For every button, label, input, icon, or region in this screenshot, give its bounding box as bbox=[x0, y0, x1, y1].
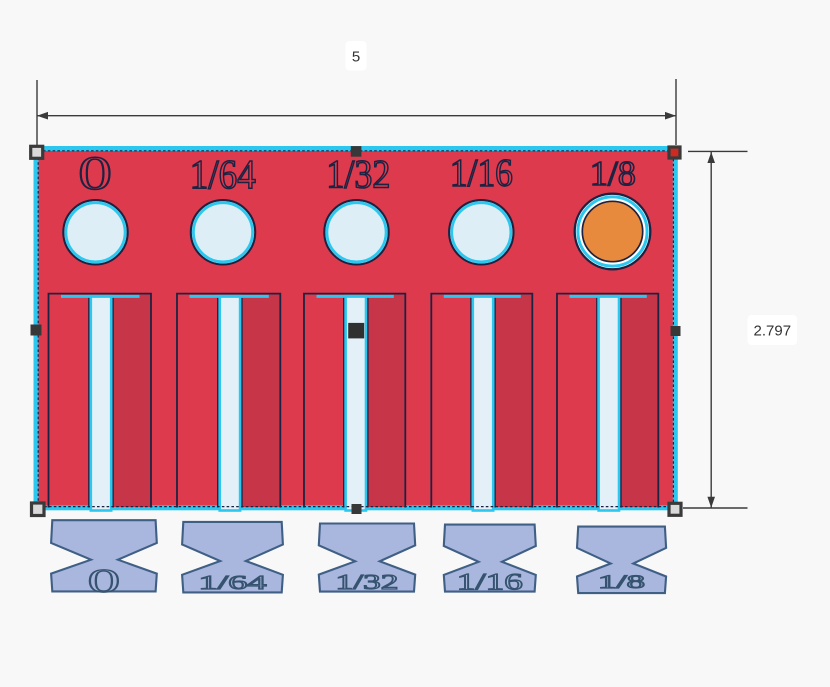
svg-text:1/32: 1/32 bbox=[326, 152, 390, 197]
svg-text:1/64: 1/64 bbox=[199, 572, 267, 594]
svg-text:0: 0 bbox=[78, 147, 112, 200]
svg-text:5: 5 bbox=[352, 49, 360, 66]
svg-text:0: 0 bbox=[87, 563, 120, 600]
svg-text:1/8: 1/8 bbox=[590, 154, 636, 193]
svg-text:2.797: 2.797 bbox=[754, 322, 792, 339]
svg-text:1/8: 1/8 bbox=[598, 573, 645, 593]
svg-text:1/32: 1/32 bbox=[336, 570, 399, 594]
svg-text:1/64: 1/64 bbox=[190, 151, 256, 197]
svg-text:1/16: 1/16 bbox=[450, 152, 513, 195]
svg-text:1/16: 1/16 bbox=[457, 570, 523, 595]
